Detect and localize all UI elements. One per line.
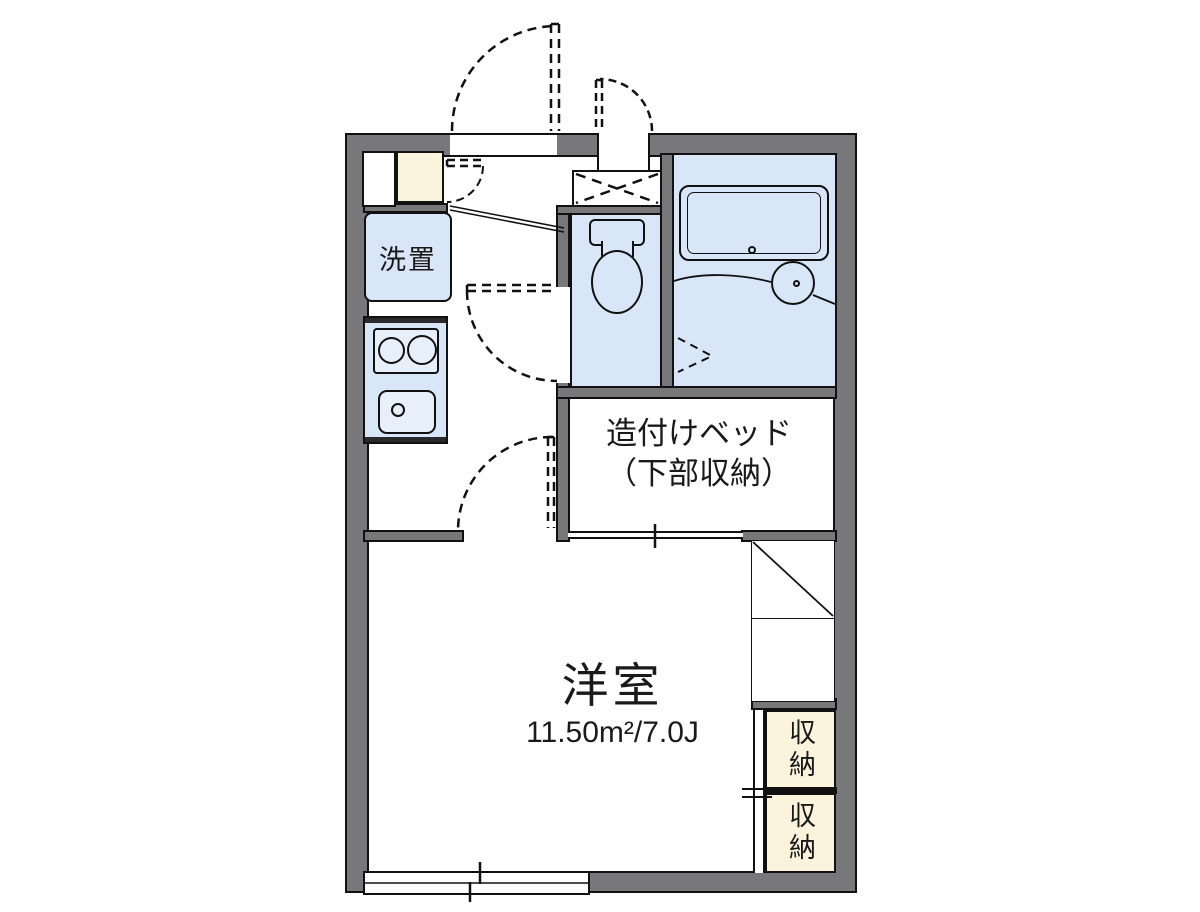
washer-door-leaf (447, 160, 485, 166)
service-door-swing (600, 79, 652, 131)
overhead-cabinet-cross (576, 174, 658, 203)
washer-door-swing (447, 166, 483, 202)
floorplan-page: { "plan": { "type": "apartment-floor-pla… (0, 0, 1200, 912)
room-door-leaf (548, 437, 554, 528)
service-door-leaf (596, 80, 602, 131)
room-door-swing (458, 437, 552, 531)
toilet-door-swing (467, 291, 557, 381)
entrance-door-swing (452, 26, 557, 131)
closet-door-ticks (742, 789, 772, 797)
bath-folding-door (678, 338, 712, 372)
plan-linework (0, 0, 1200, 912)
refrigerator-diagonal (753, 542, 833, 616)
window-ticks (470, 862, 480, 902)
bath-counter-line (674, 275, 835, 304)
entrance-door-leaf (551, 24, 559, 131)
entrance-step-line (450, 206, 564, 232)
toilet-door-leaf (467, 285, 557, 291)
